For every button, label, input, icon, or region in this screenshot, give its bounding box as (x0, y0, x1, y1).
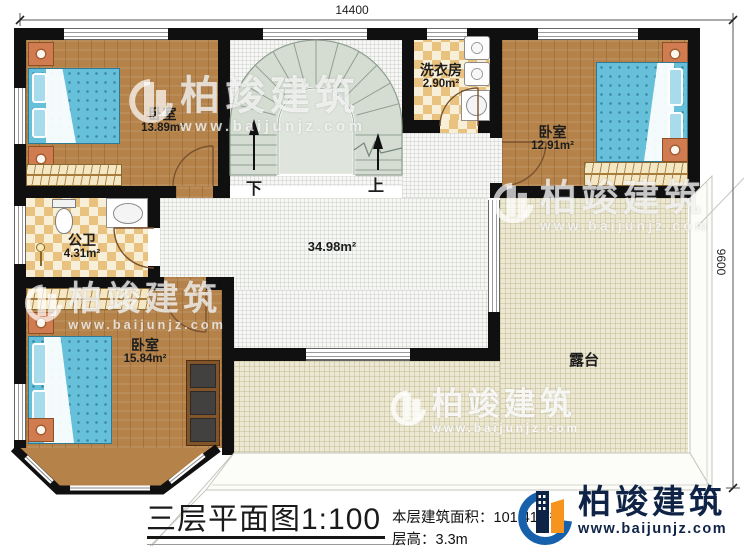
brand-logo-icon (516, 485, 572, 549)
terrace-label: 露台 (544, 349, 624, 370)
plan-title: 三层平面图1:100 (146, 494, 381, 538)
dimension-depth: 9600 (714, 232, 728, 292)
terrace-floor-bottom (234, 361, 500, 453)
brand-website: www.baijunjz.com (578, 521, 727, 537)
dimension-width: 14400 (312, 3, 392, 17)
closet (584, 162, 688, 186)
wall (222, 290, 234, 455)
room-area: 12.91m² (510, 140, 595, 153)
hall-floor-corridor (402, 133, 502, 198)
door-threshold-bedroom1 (176, 186, 213, 198)
window (14, 206, 26, 264)
washing-machine (464, 36, 490, 60)
wall (490, 186, 700, 198)
window (263, 28, 367, 40)
wall (490, 40, 502, 138)
window (427, 28, 467, 40)
brand-text: 柏竣建筑 www.baijunjz.com (578, 485, 727, 537)
closet (26, 288, 150, 310)
room-area: 2.90m² (410, 78, 472, 91)
stair-down-label: 下 (240, 175, 268, 199)
terrace-floor-right (500, 198, 688, 453)
room-label-bedroom-bottom-left: 卧室 15.84m² (100, 337, 190, 366)
wall (410, 348, 500, 361)
terrace-door-window (488, 200, 500, 312)
room-label-bedroom-top-right: 卧室 12.91m² (510, 124, 595, 153)
window (306, 348, 410, 361)
room-label-bedroom-top-left: 卧室 13.89m² (120, 106, 205, 135)
dresser (186, 360, 220, 446)
door-threshold-bedroom3 (164, 277, 206, 290)
drawer (190, 391, 216, 415)
closet (26, 164, 122, 186)
room-label-laundry: 洗衣房 2.90m² (410, 62, 472, 91)
wall (222, 348, 306, 361)
stair-up-label: 上 (362, 172, 390, 196)
pillow (32, 73, 47, 103)
floor-plan-canvas: 14400 9600 卧室 13.89m² 洗衣房 2.90m² 卧室 12.9… (0, 0, 750, 552)
window (64, 28, 168, 40)
title-underline-thin (147, 544, 399, 545)
room-area: 13.89m² (120, 122, 205, 135)
wall (402, 120, 440, 133)
nightstand (28, 312, 54, 334)
nightstand (28, 418, 54, 442)
pillow (32, 108, 47, 138)
room-area: 4.31m² (42, 248, 122, 261)
wall (206, 277, 234, 290)
wall (14, 186, 176, 198)
laundry-sink (461, 90, 490, 121)
hall-floor-under-stair (230, 40, 402, 186)
wall (218, 40, 230, 186)
nightstand (28, 42, 54, 66)
room-area: 15.84m² (100, 353, 190, 366)
drawer (190, 418, 216, 442)
pillow (32, 343, 47, 385)
drawer (190, 364, 216, 388)
brand-logo: 柏竣建筑 www.baijunjz.com (516, 485, 727, 549)
pillow (668, 68, 683, 106)
hall-area-label: 34.98m² (292, 240, 372, 255)
toilet-tank (52, 199, 76, 208)
window (14, 384, 26, 440)
wall (488, 312, 500, 348)
room-name: 公卫 (42, 232, 122, 248)
room-area: 34.98m² (292, 240, 372, 255)
sink-basin (466, 95, 487, 116)
title-underline (147, 536, 385, 539)
bathroom-sink (106, 198, 148, 228)
floor-height-label: 层高： (392, 532, 436, 548)
window (538, 28, 638, 40)
wall (213, 186, 230, 198)
nightstand (662, 138, 688, 162)
sink-basin (113, 203, 143, 223)
wall (148, 198, 160, 228)
floor-height-line: 层高：3.3m (392, 528, 468, 549)
window (14, 88, 26, 144)
room-name: 洗衣房 (410, 62, 472, 78)
floor-area-label: 本层建筑面积： (392, 510, 494, 526)
room-name: 卧室 (510, 124, 595, 140)
bay-window (14, 448, 218, 490)
wall (688, 28, 700, 198)
floor-height-value: 3.3m (436, 532, 468, 548)
room-label-bathroom: 公卫 4.31m² (42, 232, 122, 261)
toilet (55, 208, 73, 234)
room-name: 卧室 (120, 106, 205, 122)
room-name: 卧室 (100, 337, 190, 353)
brand-name: 柏竣建筑 (578, 485, 727, 520)
door-threshold-laundry (440, 120, 478, 133)
